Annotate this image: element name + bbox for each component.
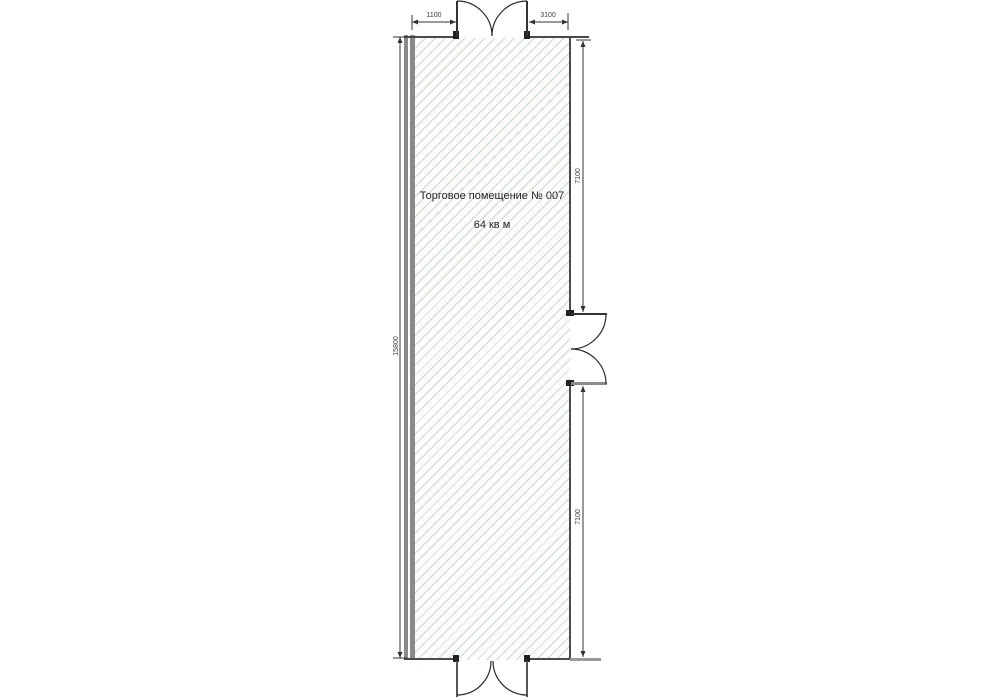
dimension-label-top-right: 3100: [540, 12, 556, 20]
floor-plan-canvas: 1100 3100 15800 7100 7100 Торговое помещ…: [0, 0, 1000, 700]
top-wall-left-segment: [404, 36, 456, 38]
right-door-upper-leaf: [571, 313, 607, 315]
dimension-label-left-total: 15800: [393, 336, 401, 355]
bottom-wall-extension-tick: [570, 658, 601, 661]
bottom-wall-left-segment: [404, 658, 455, 660]
bottom-door-right-leaf: [526, 661, 528, 697]
right-wall-upper-segment: [569, 38, 571, 314]
dimension-label-right-lower: 7100: [575, 509, 583, 525]
top-door-swing-arcs: [457, 1, 527, 36]
room-title: Торговое помещение № 007: [407, 190, 577, 203]
bottom-door-swing-arcs: [457, 661, 527, 695]
top-wall-right-segment: [528, 36, 589, 38]
right-wall-lower-segment: [569, 386, 571, 660]
top-door-left-leaf: [456, 1, 458, 36]
bottom-wall-right-segment: [528, 658, 570, 660]
dimension-label-right-upper: 7100: [575, 168, 583, 184]
room-area-label: 64 кв м: [407, 219, 577, 232]
room-area-hatch: [415, 38, 570, 660]
top-door-right-leaf: [526, 1, 528, 36]
left-wall: [404, 35, 415, 660]
right-door-swing-arcs: [571, 314, 606, 384]
dimension-label-top-left: 1100: [426, 12, 441, 20]
bottom-door-left-leaf: [456, 661, 458, 697]
right-door-lower-leaf: [571, 382, 607, 385]
